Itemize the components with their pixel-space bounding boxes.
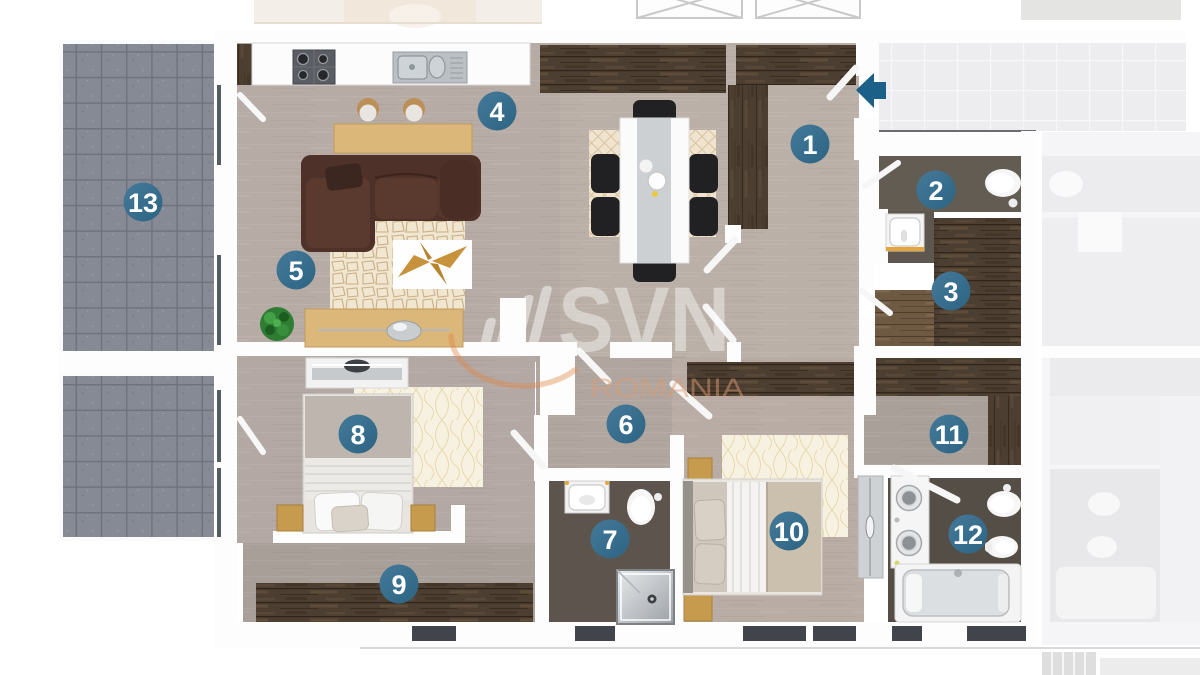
svg-text:ROMANIA: ROMANIA xyxy=(590,373,744,403)
svg-text:2: 2 xyxy=(928,176,943,206)
svg-text:5: 5 xyxy=(288,256,303,286)
svg-text:10: 10 xyxy=(774,517,804,547)
svg-text:7: 7 xyxy=(602,525,617,555)
svg-text:SVN: SVN xyxy=(558,269,730,371)
svg-text:13: 13 xyxy=(128,188,158,218)
svg-text:4: 4 xyxy=(489,97,504,127)
svg-text:11: 11 xyxy=(935,420,964,450)
svg-text:3: 3 xyxy=(943,277,958,307)
svg-text:6: 6 xyxy=(618,410,633,440)
svg-text:1: 1 xyxy=(802,130,817,160)
svg-text:9: 9 xyxy=(391,570,406,600)
svg-text:8: 8 xyxy=(350,420,365,450)
svg-text:12: 12 xyxy=(953,520,983,550)
